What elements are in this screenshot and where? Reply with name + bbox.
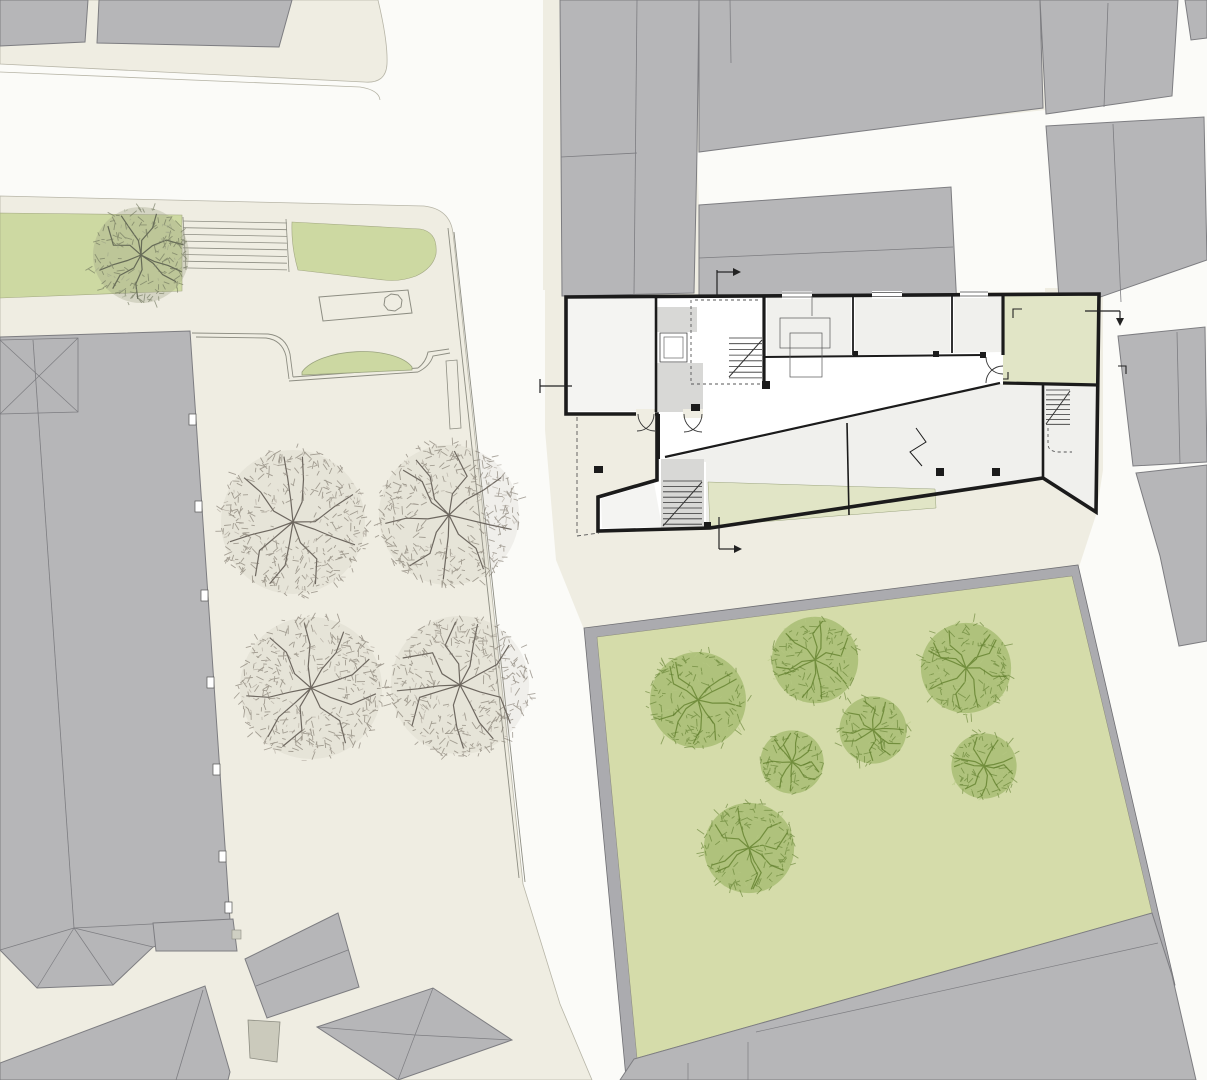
building-north-slab	[560, 0, 699, 296]
room-north-3	[954, 295, 1001, 353]
building-ne-slab-1	[1040, 0, 1178, 114]
door-gap-terrace-1	[636, 409, 655, 418]
plot-west-sidewalk-strip	[543, 0, 561, 290]
building-tan-small	[248, 1020, 280, 1062]
building-annex-rect	[153, 919, 237, 951]
building-west-hall	[0, 331, 230, 988]
annex-tan-square	[232, 930, 241, 939]
building-topleft-2	[97, 0, 292, 47]
hall-door-4	[207, 677, 214, 688]
green-room-ne	[1003, 294, 1099, 385]
pier-sw-wall	[704, 522, 711, 528]
pier-south-2	[992, 468, 1000, 476]
jamb-corridor-1	[853, 351, 858, 357]
pier-void-se	[762, 381, 770, 389]
street-gap-white	[946, 110, 1045, 292]
building-topleft-1	[0, 0, 88, 46]
plaza-lawn-east	[292, 222, 436, 281]
hall-door-6	[219, 851, 226, 862]
room-west	[568, 299, 654, 411]
hall-door-3	[201, 590, 208, 601]
jamb-corridor-2	[933, 351, 939, 357]
building-east-slab-1	[1118, 327, 1207, 466]
pier-terrace	[594, 466, 603, 473]
site-plan-canvas	[0, 0, 1207, 1080]
pier-south-1	[936, 468, 944, 476]
jamb-corridor-3	[980, 352, 986, 358]
core-stair-west	[661, 459, 704, 528]
wall-greenroom-south	[1003, 383, 1099, 385]
hall-door-2	[195, 501, 202, 512]
hall-door-1	[189, 414, 196, 425]
pier-lobby	[691, 404, 700, 411]
room-north-2	[855, 295, 950, 355]
hall-door-7	[225, 902, 232, 913]
hall-door-5	[213, 764, 220, 775]
site-plan-stage	[0, 0, 1207, 1080]
